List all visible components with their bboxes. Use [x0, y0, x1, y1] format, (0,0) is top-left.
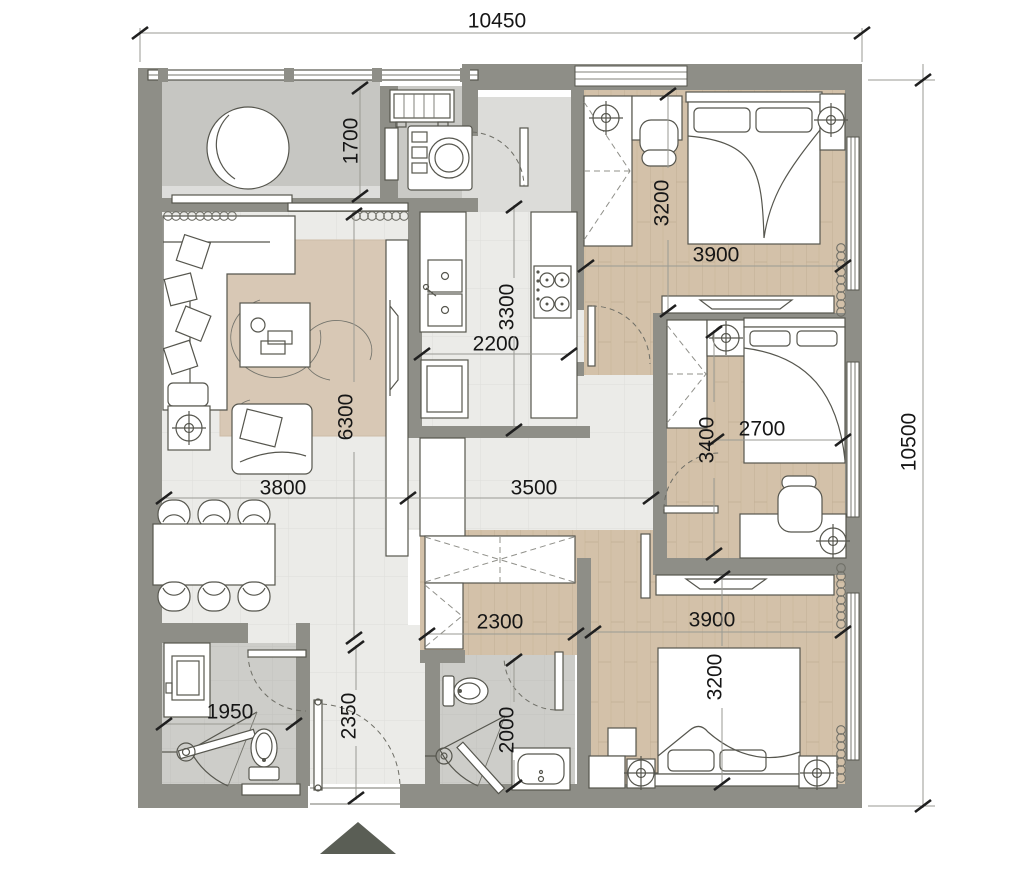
floor-plan-page: 10450 10500 1700 3200 3900 2200 3300 630… [0, 0, 1024, 879]
headboard [686, 92, 822, 102]
wardrobe [667, 320, 707, 428]
media-wall-unit [386, 240, 408, 556]
sofa-pillow [164, 273, 197, 306]
window-bedroom2 [847, 137, 859, 290]
dining-table [153, 524, 275, 585]
cistern [249, 767, 279, 780]
bed [744, 318, 845, 463]
wall-bedroom3-west [653, 313, 667, 558]
bathtub [512, 748, 570, 790]
pillow [694, 108, 750, 132]
egg-chair [207, 107, 289, 189]
window-bedroom3 [847, 362, 859, 517]
tall-cabinet [420, 438, 465, 536]
window-master [847, 593, 859, 760]
entrance-arrow-icon [320, 822, 396, 854]
wall-left [138, 68, 162, 808]
desk-chair [640, 120, 678, 166]
dim-closet-width: 2300 [477, 611, 524, 634]
pillow [668, 750, 714, 771]
kitchen-counter-sink [420, 212, 466, 332]
wall-bath1-corner [296, 623, 310, 643]
bed [654, 648, 804, 786]
dim-kitchen-length: 3300 [496, 284, 519, 331]
wall-master-north [653, 558, 862, 575]
entry-floor [310, 625, 425, 786]
dim-balcony: 1700 [340, 118, 363, 165]
cistern [443, 676, 454, 706]
dim-bedroom2-width: 3200 [651, 180, 674, 227]
sofa-pillow [168, 383, 208, 406]
laundry-shelf [385, 128, 398, 180]
dim-bath2-length: 2000 [496, 707, 519, 754]
dim-bedroom3-length: 3400 [696, 417, 719, 464]
dim-living-length: 6300 [335, 394, 358, 441]
toilet [443, 676, 488, 706]
ac-unit [390, 90, 454, 127]
dining-chair [238, 582, 270, 611]
dim-master-length: 3900 [689, 609, 736, 632]
balcony-sliding-door-panel [288, 203, 408, 211]
dim-kitchen-width: 2200 [473, 333, 520, 356]
dim-living-width: 3800 [260, 477, 307, 500]
wall-bedroom2-west [571, 88, 584, 212]
dim-hall-width: 3500 [511, 477, 558, 500]
closet-wardrobe [425, 536, 575, 583]
dining-chair [158, 582, 190, 611]
pouf [608, 728, 636, 756]
headboard [744, 318, 845, 327]
dining-chair [198, 582, 230, 611]
wall-bath1-north [138, 623, 248, 643]
dim-bedroom3-width: 2700 [739, 418, 786, 441]
pillow [797, 331, 837, 346]
pillow [756, 108, 812, 132]
dim-bath1-width: 1950 [207, 701, 254, 724]
wall-bath2-north-stub [420, 650, 465, 663]
dim-master-width: 3200 [704, 654, 727, 701]
wall-bath2-west [425, 650, 440, 786]
vanity [164, 643, 210, 717]
wall-bath1-east [296, 643, 310, 786]
washing-machine [408, 126, 472, 190]
floor-plan-drawing: 10450 10500 1700 3200 3900 2200 3300 630… [0, 0, 1024, 879]
bed [686, 92, 822, 244]
balcony-sliding-door-panel [172, 195, 292, 203]
tv-console [656, 575, 834, 595]
master-pocket-door [641, 534, 650, 598]
coffee-table [240, 303, 310, 367]
window-bedroom2-top [575, 66, 687, 86]
dim-entry-length: 2350 [338, 693, 361, 740]
dining-set [153, 500, 275, 611]
wall-master-west [577, 558, 591, 786]
pillow [750, 331, 790, 346]
dresser-console [662, 296, 834, 313]
desk-chair [778, 476, 822, 532]
nightstand [589, 756, 625, 788]
dim-overall-height: 10500 [898, 413, 921, 471]
closet-wardrobe-column [425, 583, 463, 649]
dim-bedroom2-length: 3900 [693, 244, 740, 267]
toilet [249, 729, 279, 780]
wall-kitchen-south [408, 426, 590, 438]
bath-shelf [242, 784, 300, 795]
kitchen-counter-stove [531, 212, 577, 418]
kitchen-appliance [421, 360, 468, 418]
dim-overall-width: 10450 [468, 10, 526, 33]
armchair [232, 404, 312, 474]
